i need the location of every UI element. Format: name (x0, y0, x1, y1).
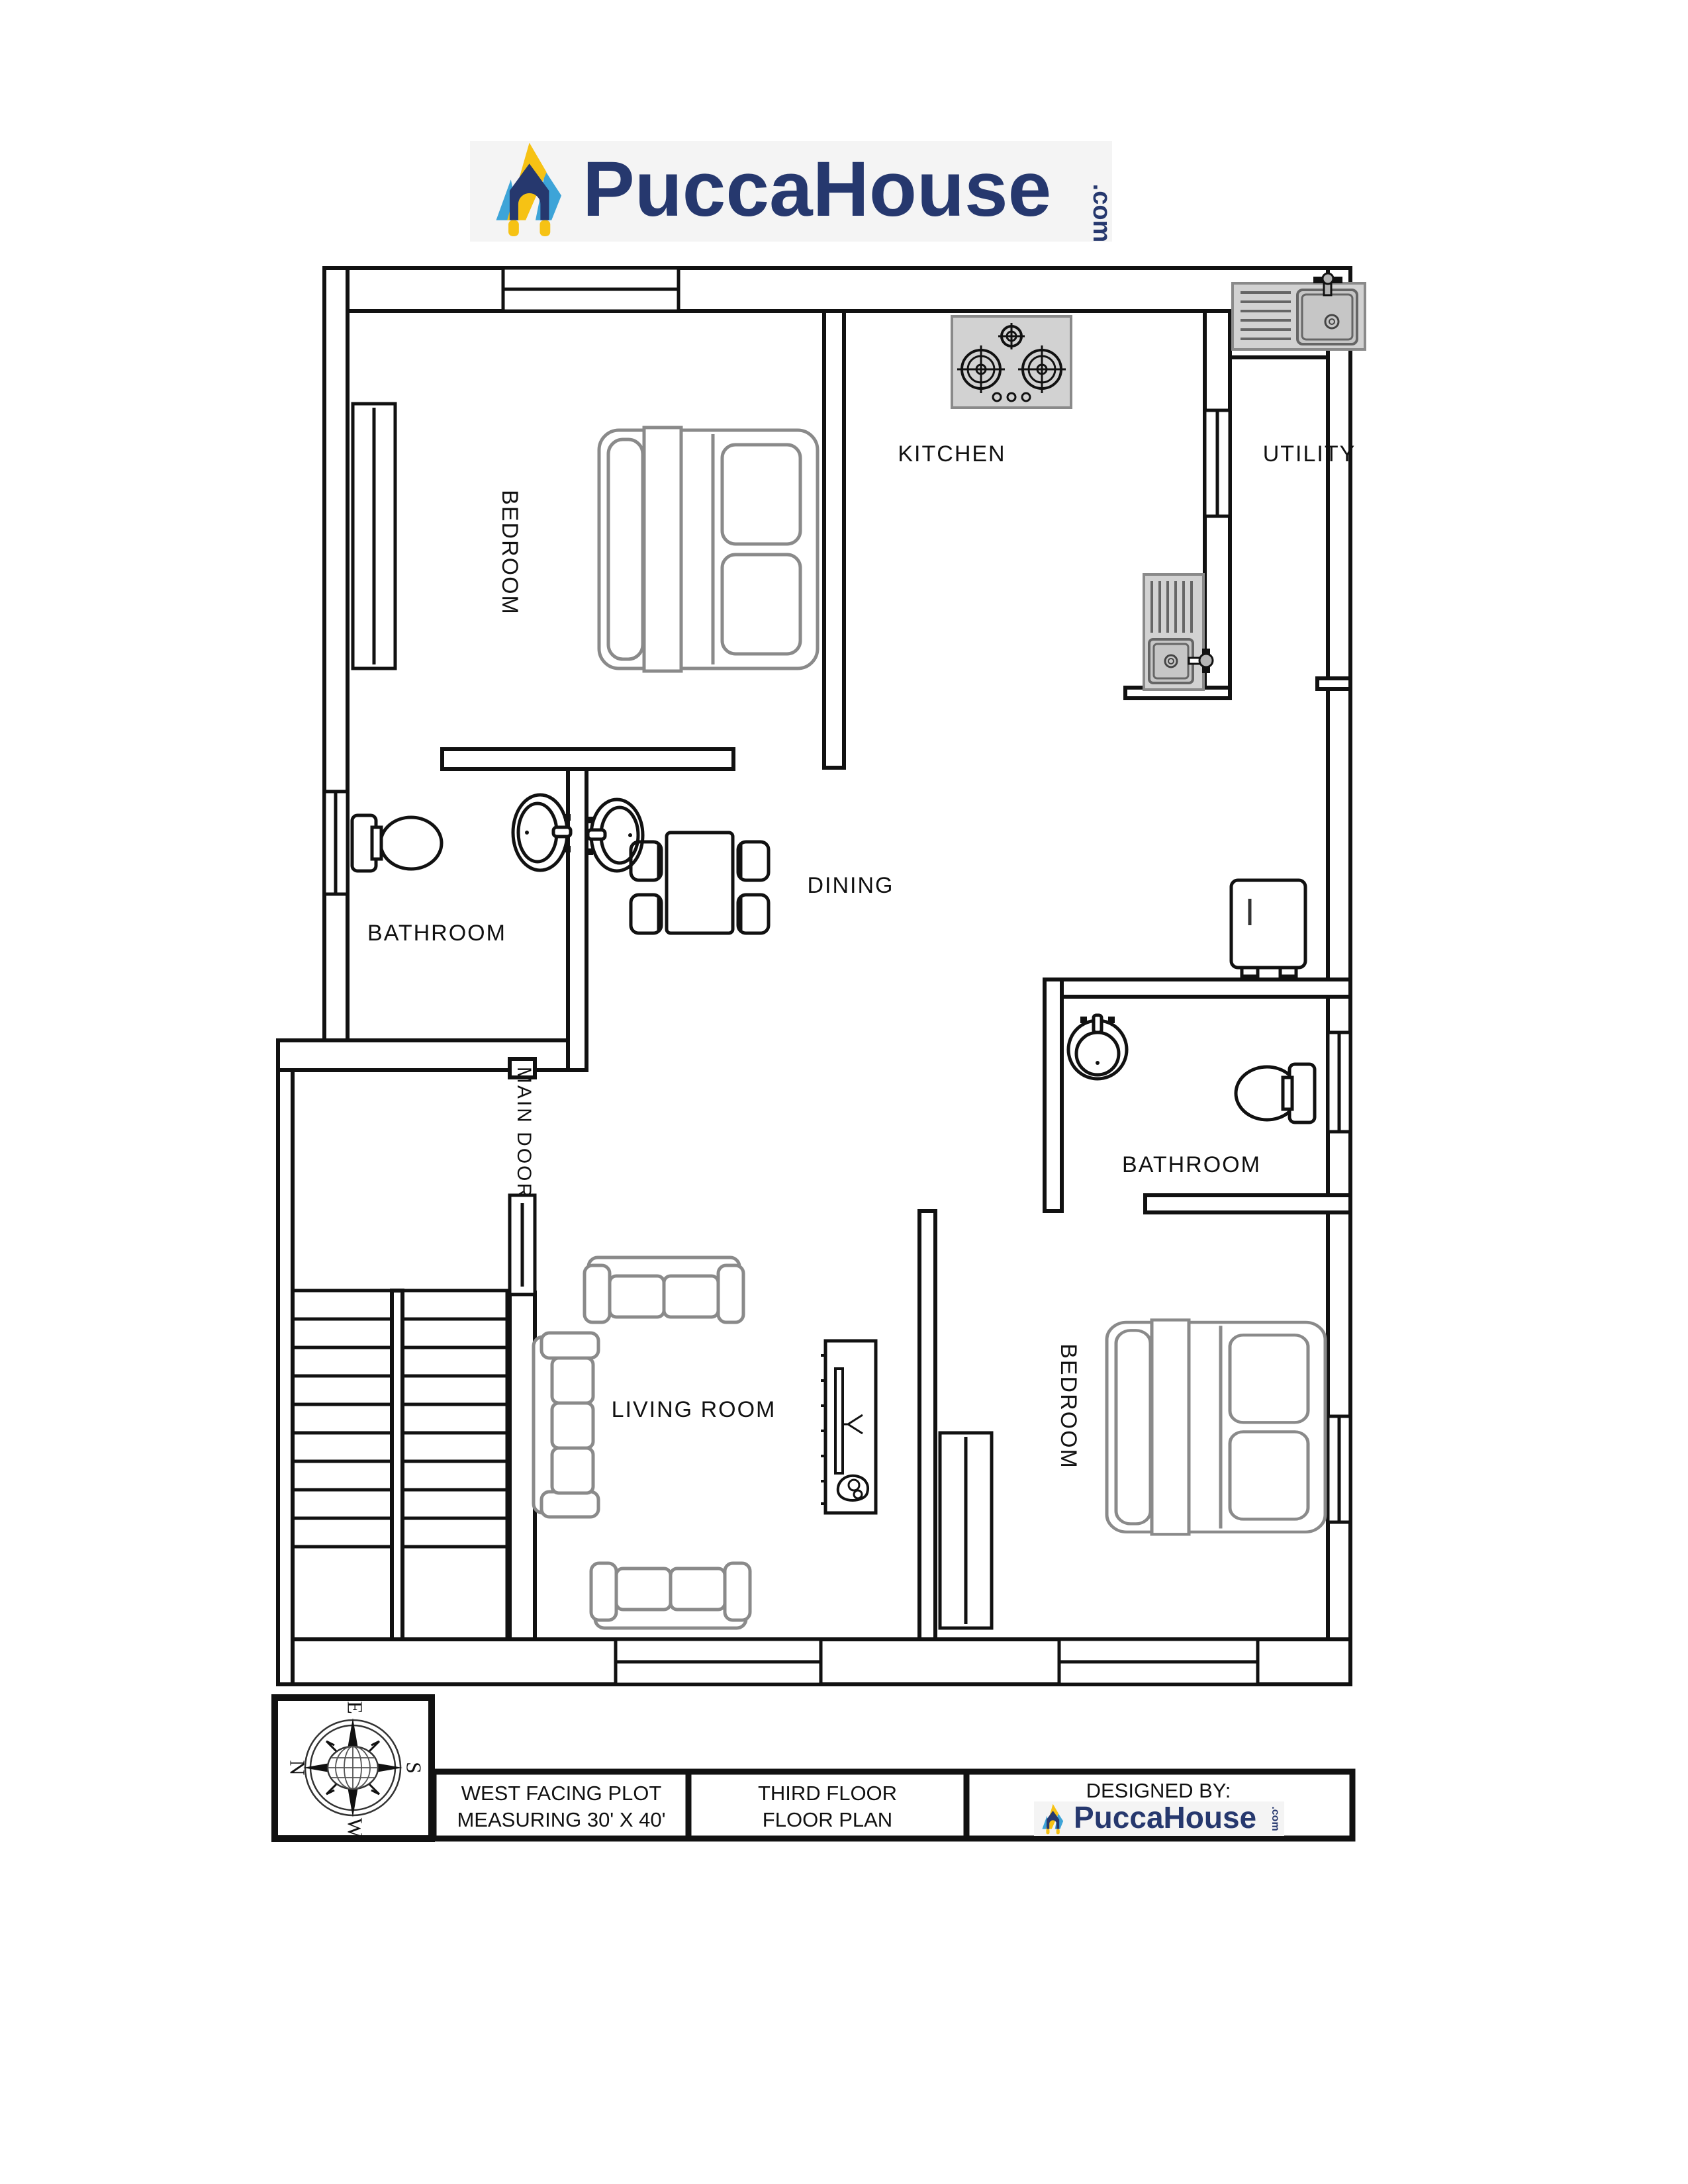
compass-south-label: S (402, 1762, 426, 1774)
compass-east-label: E (344, 1701, 367, 1714)
window-kitchen-utility (1205, 410, 1230, 516)
room-label-dining: DINING (808, 873, 894, 898)
wall-bathroom1-right (568, 749, 586, 1070)
double-bed-icon (599, 428, 818, 671)
wall-top (324, 268, 1350, 311)
dining-table-icon (631, 833, 769, 933)
window-bedroom2-right (1328, 1416, 1350, 1522)
wall-living-bedroom2 (919, 1211, 935, 1639)
sofa-icon (585, 1257, 743, 1322)
floor-name-text: THIRD FLOOR (758, 1782, 897, 1805)
utility-sink-icon (1233, 273, 1365, 349)
wash-basin-icon (513, 795, 571, 870)
wardrobe-icon (353, 404, 395, 668)
brand-suffix: .com (1088, 184, 1115, 243)
window-bathroom1-left (324, 792, 348, 894)
room-label-bathroom-2: BATHROOM (1122, 1152, 1261, 1177)
wall-bathroom2-bottom (1145, 1195, 1350, 1212)
floor-plan-page: PuccaHouse .com (0, 0, 1688, 2184)
toilet-icon (352, 815, 442, 871)
room-label-bedroom-2: BEDROOM (1056, 1343, 1081, 1469)
compass-west-label: W (344, 1818, 367, 1839)
room-label-bedroom-1: BEDROOM (497, 490, 522, 615)
compass-rose-icon: E S W N (275, 1698, 432, 1839)
wardrobe-icon (940, 1433, 992, 1628)
room-label-bathroom-1: BATHROOM (367, 921, 506, 946)
compass-north-label: N (286, 1760, 310, 1775)
room-label-kitchen: KITCHEN (898, 441, 1006, 467)
toilet-icon (1236, 1064, 1315, 1122)
double-bed-icon (1107, 1320, 1325, 1534)
header-logo: PuccaHouse .com (470, 141, 1115, 242)
window-living-bottom (616, 1639, 821, 1684)
plot-facing-text: WEST FACING PLOT (461, 1782, 662, 1805)
window-bedroom2-bottom (1059, 1639, 1258, 1684)
wash-basin-icon (1068, 1015, 1127, 1079)
sofa-icon (534, 1333, 598, 1517)
plot-measure-text: MEASURING 30' X 40' (457, 1808, 665, 1831)
tv-unit-icon (821, 1341, 876, 1513)
main-door-label: MAIN DOOR (513, 1067, 535, 1199)
refrigerator-icon (1231, 880, 1305, 976)
footer-brand-name: PuccaHouse (1074, 1800, 1256, 1835)
staircase-icon (293, 1291, 507, 1639)
wall-utility-bottom (1317, 678, 1350, 689)
footer-brand-suffix: .com (1270, 1806, 1281, 1831)
gas-stove-icon (952, 316, 1071, 408)
wall-bedroom1-bottom (442, 749, 733, 769)
room-label-living-room: LIVING ROOM (612, 1397, 776, 1422)
designed-by-text: DESIGNED BY: (1086, 1779, 1231, 1802)
kitchen-sink-icon (1144, 574, 1213, 690)
wall-bedroom1-kitchen (824, 311, 844, 768)
wash-basin-icon (586, 799, 643, 871)
wall-bathroom2-left (1045, 979, 1062, 1211)
wall-bathroom2-top (1045, 979, 1350, 997)
wall-maindoor-lower (510, 1293, 535, 1639)
wall-left-upper (324, 268, 348, 1070)
window-bedroom1-top (503, 268, 679, 311)
title-block: WEST FACING PLOT MEASURING 30' X 40' THI… (434, 1772, 1352, 1839)
room-label-utility: UTILITY (1263, 441, 1356, 467)
wall-stair-left (278, 1040, 293, 1684)
window-bathroom2-right (1328, 1032, 1350, 1132)
floor-plan-text: FLOOR PLAN (763, 1808, 892, 1831)
floor-plan-canvas: PuccaHouse .com (0, 0, 1688, 2184)
sofa-icon (591, 1563, 750, 1628)
main-door-frame (510, 1195, 535, 1295)
brand-name: PuccaHouse (583, 146, 1051, 233)
